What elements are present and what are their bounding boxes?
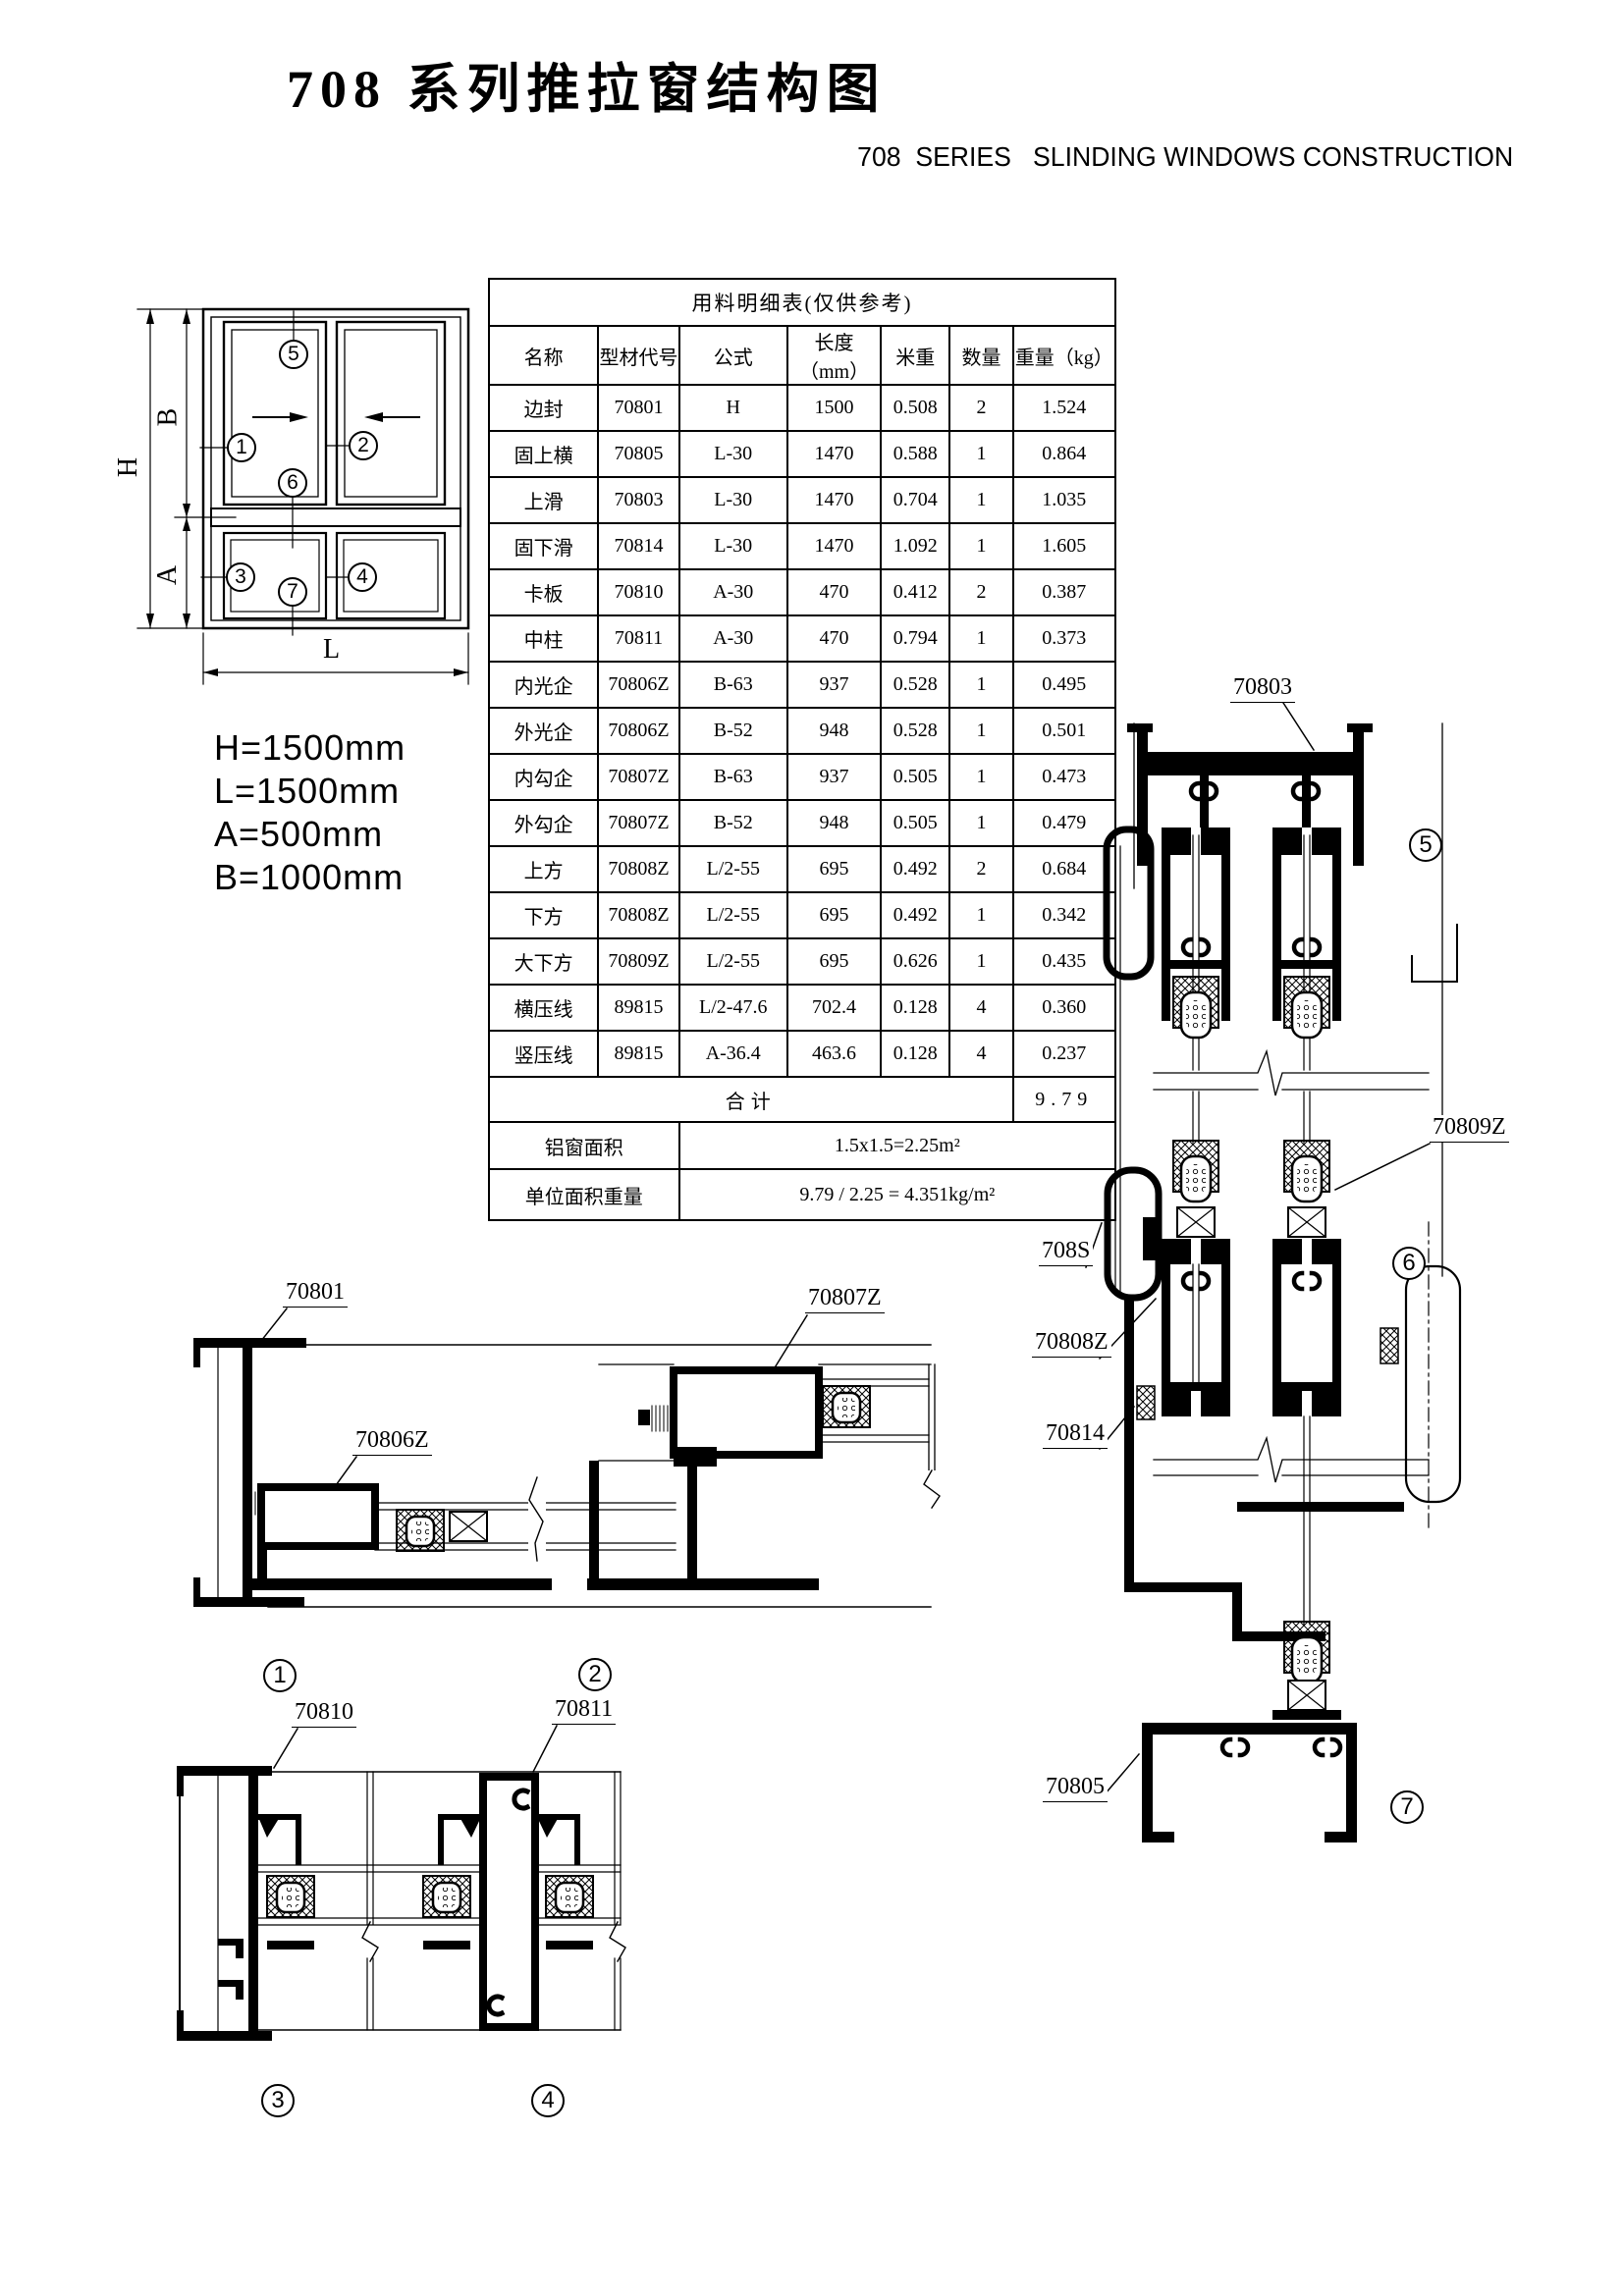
table-cell: 1 <box>949 708 1012 754</box>
table-cell: 边封 <box>489 385 598 431</box>
table-cell: 0.704 <box>881 477 949 523</box>
table-row: 大下方 70809Z L/2-55 695 0.626 1 0.435 <box>489 938 1115 985</box>
table-cell: 0.479 <box>1013 800 1115 846</box>
table-cell: 0.128 <box>881 1031 949 1077</box>
table-cell: 1 <box>949 477 1012 523</box>
table-cell: 1 <box>949 800 1012 846</box>
table-cell: 70806Z <box>598 662 678 708</box>
schematic-marker-2: 2 <box>349 431 378 460</box>
table-cell: 1500 <box>787 385 881 431</box>
section-detail-3-4 <box>177 1766 625 2041</box>
table-cell: 2 <box>949 846 1012 892</box>
drawing-sheet: 708 系列推拉窗结构图 708 SERIES SLINDING WINDOWS… <box>0 0 1623 2296</box>
part-label-70808z: 70808Z <box>1032 1330 1111 1358</box>
table-cell: 内勾企 <box>489 754 598 800</box>
table-cell: 937 <box>787 662 881 708</box>
section-detail-5-6-7 <box>1107 723 1460 1842</box>
table-row: 内光企 70806Z B-63 937 0.528 1 0.495 <box>489 662 1115 708</box>
table-cell: 0.412 <box>881 569 949 615</box>
table-cell: B-52 <box>679 708 787 754</box>
table-cell: 70806Z <box>598 708 678 754</box>
table-row: 竖压线 89815 A-36.4 463.6 0.128 4 0.237 <box>489 1031 1115 1077</box>
part-label-70809z: 70809Z <box>1430 1115 1509 1143</box>
table-cell: 0.528 <box>881 708 949 754</box>
table-cell: 外光企 <box>489 708 598 754</box>
table-cell: 70810 <box>598 569 678 615</box>
table-cell: A-36.4 <box>679 1031 787 1077</box>
table-header-row: 名称 型材代号 公式 长度（mm） 米重 数量 重量（kg） <box>489 326 1115 385</box>
section-detail-1-2 <box>193 1338 943 1607</box>
schematic-marker-5: 5 <box>279 340 308 369</box>
table-cell: 0.128 <box>881 985 949 1031</box>
table-header: 重量（kg） <box>1013 326 1115 385</box>
dimension-note-h: H=1500mm <box>214 726 406 770</box>
table-cell: 卡板 <box>489 569 598 615</box>
dim-label-h: H <box>115 457 142 477</box>
table-cell: 695 <box>787 892 881 938</box>
table-cell: A-30 <box>679 615 787 662</box>
table-cell: 2 <box>949 569 1012 615</box>
table-cell: 0.495 <box>1013 662 1115 708</box>
table-cell: 1 <box>949 892 1012 938</box>
table-total-label: 合计 <box>489 1077 1013 1122</box>
table-cell: 0.794 <box>881 615 949 662</box>
table-cell: 70808Z <box>598 846 678 892</box>
table-cell: 固上横 <box>489 431 598 477</box>
table-row: 固上横 70805 L-30 1470 0.588 1 0.864 <box>489 431 1115 477</box>
table-cell: 1.092 <box>881 523 949 569</box>
table-cell: 外勾企 <box>489 800 598 846</box>
table-row: 固下滑 70814 L-30 1470 1.092 1 1.605 <box>489 523 1115 569</box>
table-row: 中柱 70811 A-30 470 0.794 1 0.373 <box>489 615 1115 662</box>
table-cell: 0.864 <box>1013 431 1115 477</box>
table-cell: 0.626 <box>881 938 949 985</box>
table-area-label: 铝窗面积 <box>489 1122 679 1169</box>
table-cell: A-30 <box>679 569 787 615</box>
table-row: 外光企 70806Z B-52 948 0.528 1 0.501 <box>489 708 1115 754</box>
table-cell: 0.501 <box>1013 708 1115 754</box>
table-unit-row: 单位面积重量 9.79 / 2.25 = 4.351kg/m² <box>489 1169 1115 1220</box>
table-cell: 固下滑 <box>489 523 598 569</box>
table-total-row: 合计 9.79 <box>489 1077 1115 1122</box>
schematic-marker-3: 3 <box>226 562 255 592</box>
dimension-notes: H=1500mm L=1500mm A=500mm B=1000mm <box>214 726 406 899</box>
table-cell: 1.524 <box>1013 385 1115 431</box>
dimension-note-b: B=1000mm <box>214 856 406 899</box>
table-cell: 0.508 <box>881 385 949 431</box>
dimension-note-l: L=1500mm <box>214 770 406 813</box>
table-cell: 0.387 <box>1013 569 1115 615</box>
table-cell: L/2-55 <box>679 846 787 892</box>
table-cell: B-63 <box>679 662 787 708</box>
table-row: 外勾企 70807Z B-52 948 0.505 1 0.479 <box>489 800 1115 846</box>
dim-label-l: L <box>323 636 340 664</box>
table-cell: 上滑 <box>489 477 598 523</box>
table-cell: 695 <box>787 846 881 892</box>
table-cell: 70814 <box>598 523 678 569</box>
table-cell: 948 <box>787 800 881 846</box>
part-label-70801: 70801 <box>283 1280 348 1308</box>
table-cell: 937 <box>787 754 881 800</box>
table-area-value: 1.5x1.5=2.25m² <box>679 1122 1115 1169</box>
table-row: 边封 70801 H 1500 0.508 2 1.524 <box>489 385 1115 431</box>
table-cell: 70809Z <box>598 938 678 985</box>
table-cell: 0.373 <box>1013 615 1115 662</box>
table-row: 横压线 89815 L/2-47.6 702.4 0.128 4 0.360 <box>489 985 1115 1031</box>
table-cell: 89815 <box>598 1031 678 1077</box>
table-cell: 内光企 <box>489 662 598 708</box>
table-cell: 大下方 <box>489 938 598 985</box>
section-marker-2: 2 <box>578 1658 612 1691</box>
part-label-70806z: 70806Z <box>352 1428 432 1456</box>
page-subtitle: 708 SERIES SLINDING WINDOWS CONSTRUCTION <box>857 141 1513 173</box>
table-cell: 上方 <box>489 846 598 892</box>
table-cell: 0.342 <box>1013 892 1115 938</box>
table-unit-value: 9.79 / 2.25 = 4.351kg/m² <box>679 1169 1115 1220</box>
table-cell: L-30 <box>679 431 787 477</box>
table-total-value: 9.79 <box>1013 1077 1115 1122</box>
table-cell: 2 <box>949 385 1012 431</box>
table-cell: 70811 <box>598 615 678 662</box>
table-cell: 1 <box>949 938 1012 985</box>
dim-label-b: B <box>154 408 182 427</box>
table-row: 卡板 70810 A-30 470 0.412 2 0.387 <box>489 569 1115 615</box>
table-cell: 1 <box>949 754 1012 800</box>
table-cell: 下方 <box>489 892 598 938</box>
table-cell: 1470 <box>787 431 881 477</box>
table-cell: 470 <box>787 569 881 615</box>
table-cell: 4 <box>949 985 1012 1031</box>
part-label-70814: 70814 <box>1043 1421 1108 1449</box>
table-cell: 70807Z <box>598 800 678 846</box>
dimension-note-a: A=500mm <box>214 813 406 856</box>
schematic-marker-4: 4 <box>348 562 377 592</box>
table-cell: 竖压线 <box>489 1031 598 1077</box>
table-cell: 1.605 <box>1013 523 1115 569</box>
table-cell: 70801 <box>598 385 678 431</box>
part-label-70810: 70810 <box>292 1700 356 1728</box>
table-cell: 948 <box>787 708 881 754</box>
table-cell: 1.035 <box>1013 477 1115 523</box>
table-cell: 470 <box>787 615 881 662</box>
table-cell: 89815 <box>598 985 678 1031</box>
table-cell: 1470 <box>787 477 881 523</box>
table-cell: 70807Z <box>598 754 678 800</box>
table-cell: 702.4 <box>787 985 881 1031</box>
table-cell: 1 <box>949 523 1012 569</box>
table-header: 米重 <box>881 326 949 385</box>
table-cell: L-30 <box>679 477 787 523</box>
table-header: 长度（mm） <box>787 326 881 385</box>
part-label-70805: 70805 <box>1043 1775 1108 1802</box>
table-cell: 0.528 <box>881 662 949 708</box>
part-label-70811: 70811 <box>552 1697 616 1725</box>
table-cell: 70808Z <box>598 892 678 938</box>
table-header: 型材代号 <box>598 326 678 385</box>
table-cell: L/2-47.6 <box>679 985 787 1031</box>
table-cell: 0.505 <box>881 754 949 800</box>
table-cell: 1470 <box>787 523 881 569</box>
table-cell: 中柱 <box>489 615 598 662</box>
table-header: 公式 <box>679 326 787 385</box>
part-label-708s: 708S <box>1039 1239 1093 1266</box>
table-header: 数量 <box>949 326 1012 385</box>
schematic-marker-7: 7 <box>278 577 307 607</box>
section-marker-6: 6 <box>1392 1247 1426 1280</box>
table-cell: 0.492 <box>881 846 949 892</box>
table-header: 名称 <box>489 326 598 385</box>
table-cell: B-52 <box>679 800 787 846</box>
table-cell: 1 <box>949 662 1012 708</box>
table-cell: L/2-55 <box>679 938 787 985</box>
table-cell: 0.237 <box>1013 1031 1115 1077</box>
table-cell: 0.435 <box>1013 938 1115 985</box>
table-cell: 70803 <box>598 477 678 523</box>
table-cell: 0.588 <box>881 431 949 477</box>
table-cell: 4 <box>949 1031 1012 1077</box>
page-title: 708 系列推拉窗结构图 <box>287 45 887 123</box>
table-cell: B-63 <box>679 754 787 800</box>
table-title-row: 用料明细表(仅供参考) <box>489 279 1115 326</box>
table-cell: 70805 <box>598 431 678 477</box>
table-cell: 0.684 <box>1013 846 1115 892</box>
table-cell: L-30 <box>679 523 787 569</box>
table-area-row: 铝窗面积 1.5x1.5=2.25m² <box>489 1122 1115 1169</box>
table-title: 用料明细表(仅供参考) <box>489 279 1115 326</box>
table-cell: 463.6 <box>787 1031 881 1077</box>
part-label-70803: 70803 <box>1230 675 1295 703</box>
section-marker-3: 3 <box>261 2084 295 2117</box>
table-cell: 1 <box>949 615 1012 662</box>
table-cell: 0.473 <box>1013 754 1115 800</box>
table-cell: 横压线 <box>489 985 598 1031</box>
table-row: 下方 70808Z L/2-55 695 0.492 1 0.342 <box>489 892 1115 938</box>
table-row: 上滑 70803 L-30 1470 0.704 1 1.035 <box>489 477 1115 523</box>
table-cell: 0.505 <box>881 800 949 846</box>
table-cell: 0.360 <box>1013 985 1115 1031</box>
section-marker-1: 1 <box>263 1659 297 1692</box>
part-label-70807z: 70807Z <box>805 1286 885 1313</box>
table-cell: L/2-55 <box>679 892 787 938</box>
schematic-marker-6: 6 <box>278 468 307 498</box>
dim-label-a: A <box>154 565 182 585</box>
table-row: 内勾企 70807Z B-63 937 0.505 1 0.473 <box>489 754 1115 800</box>
table-cell: 0.492 <box>881 892 949 938</box>
table-row: 上方 70808Z L/2-55 695 0.492 2 0.684 <box>489 846 1115 892</box>
section-marker-5: 5 <box>1409 828 1442 862</box>
table-cell: 1 <box>949 431 1012 477</box>
table-cell: 695 <box>787 938 881 985</box>
materials-table: 用料明细表(仅供参考) 名称 型材代号 公式 长度（mm） 米重 数量 重量（k… <box>488 278 1116 1221</box>
section-marker-4: 4 <box>531 2084 565 2117</box>
table-unit-label: 单位面积重量 <box>489 1169 679 1220</box>
table-cell: H <box>679 385 787 431</box>
schematic-marker-1: 1 <box>227 433 256 462</box>
section-marker-7: 7 <box>1390 1790 1424 1824</box>
